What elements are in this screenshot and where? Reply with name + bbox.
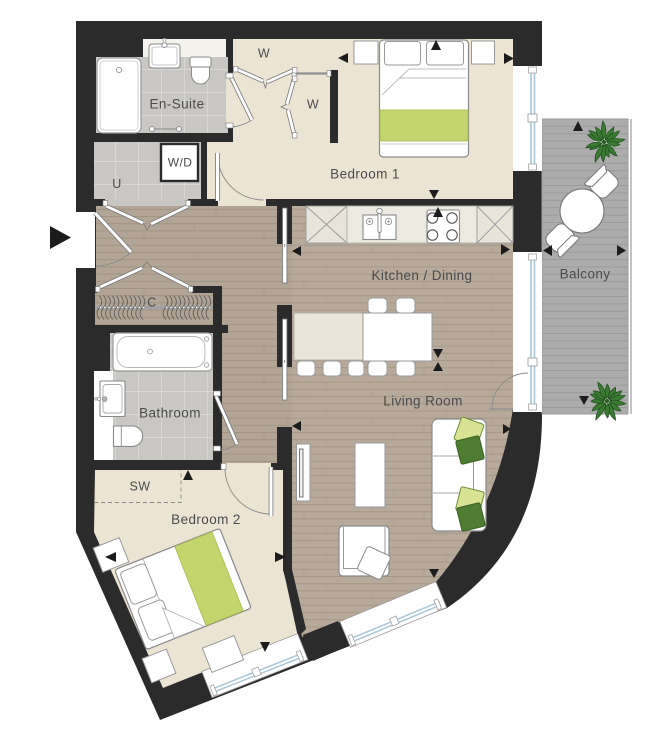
svg-text:C: C [147, 296, 156, 310]
svg-text:W: W [307, 98, 319, 112]
svg-text:En-Suite: En-Suite [150, 97, 205, 112]
svg-text:Kitchen / Dining: Kitchen / Dining [372, 268, 473, 283]
svg-text:SW: SW [130, 480, 151, 494]
svg-text:Living Room: Living Room [383, 394, 462, 409]
svg-text:Bathroom: Bathroom [139, 406, 201, 421]
svg-text:W/D: W/D [168, 156, 193, 170]
svg-text:Balcony: Balcony [560, 267, 611, 282]
svg-text:Bedroom 1: Bedroom 1 [330, 167, 400, 182]
svg-text:Bedroom 2: Bedroom 2 [171, 512, 241, 527]
svg-text:U: U [112, 177, 121, 191]
svg-text:W: W [258, 47, 270, 61]
